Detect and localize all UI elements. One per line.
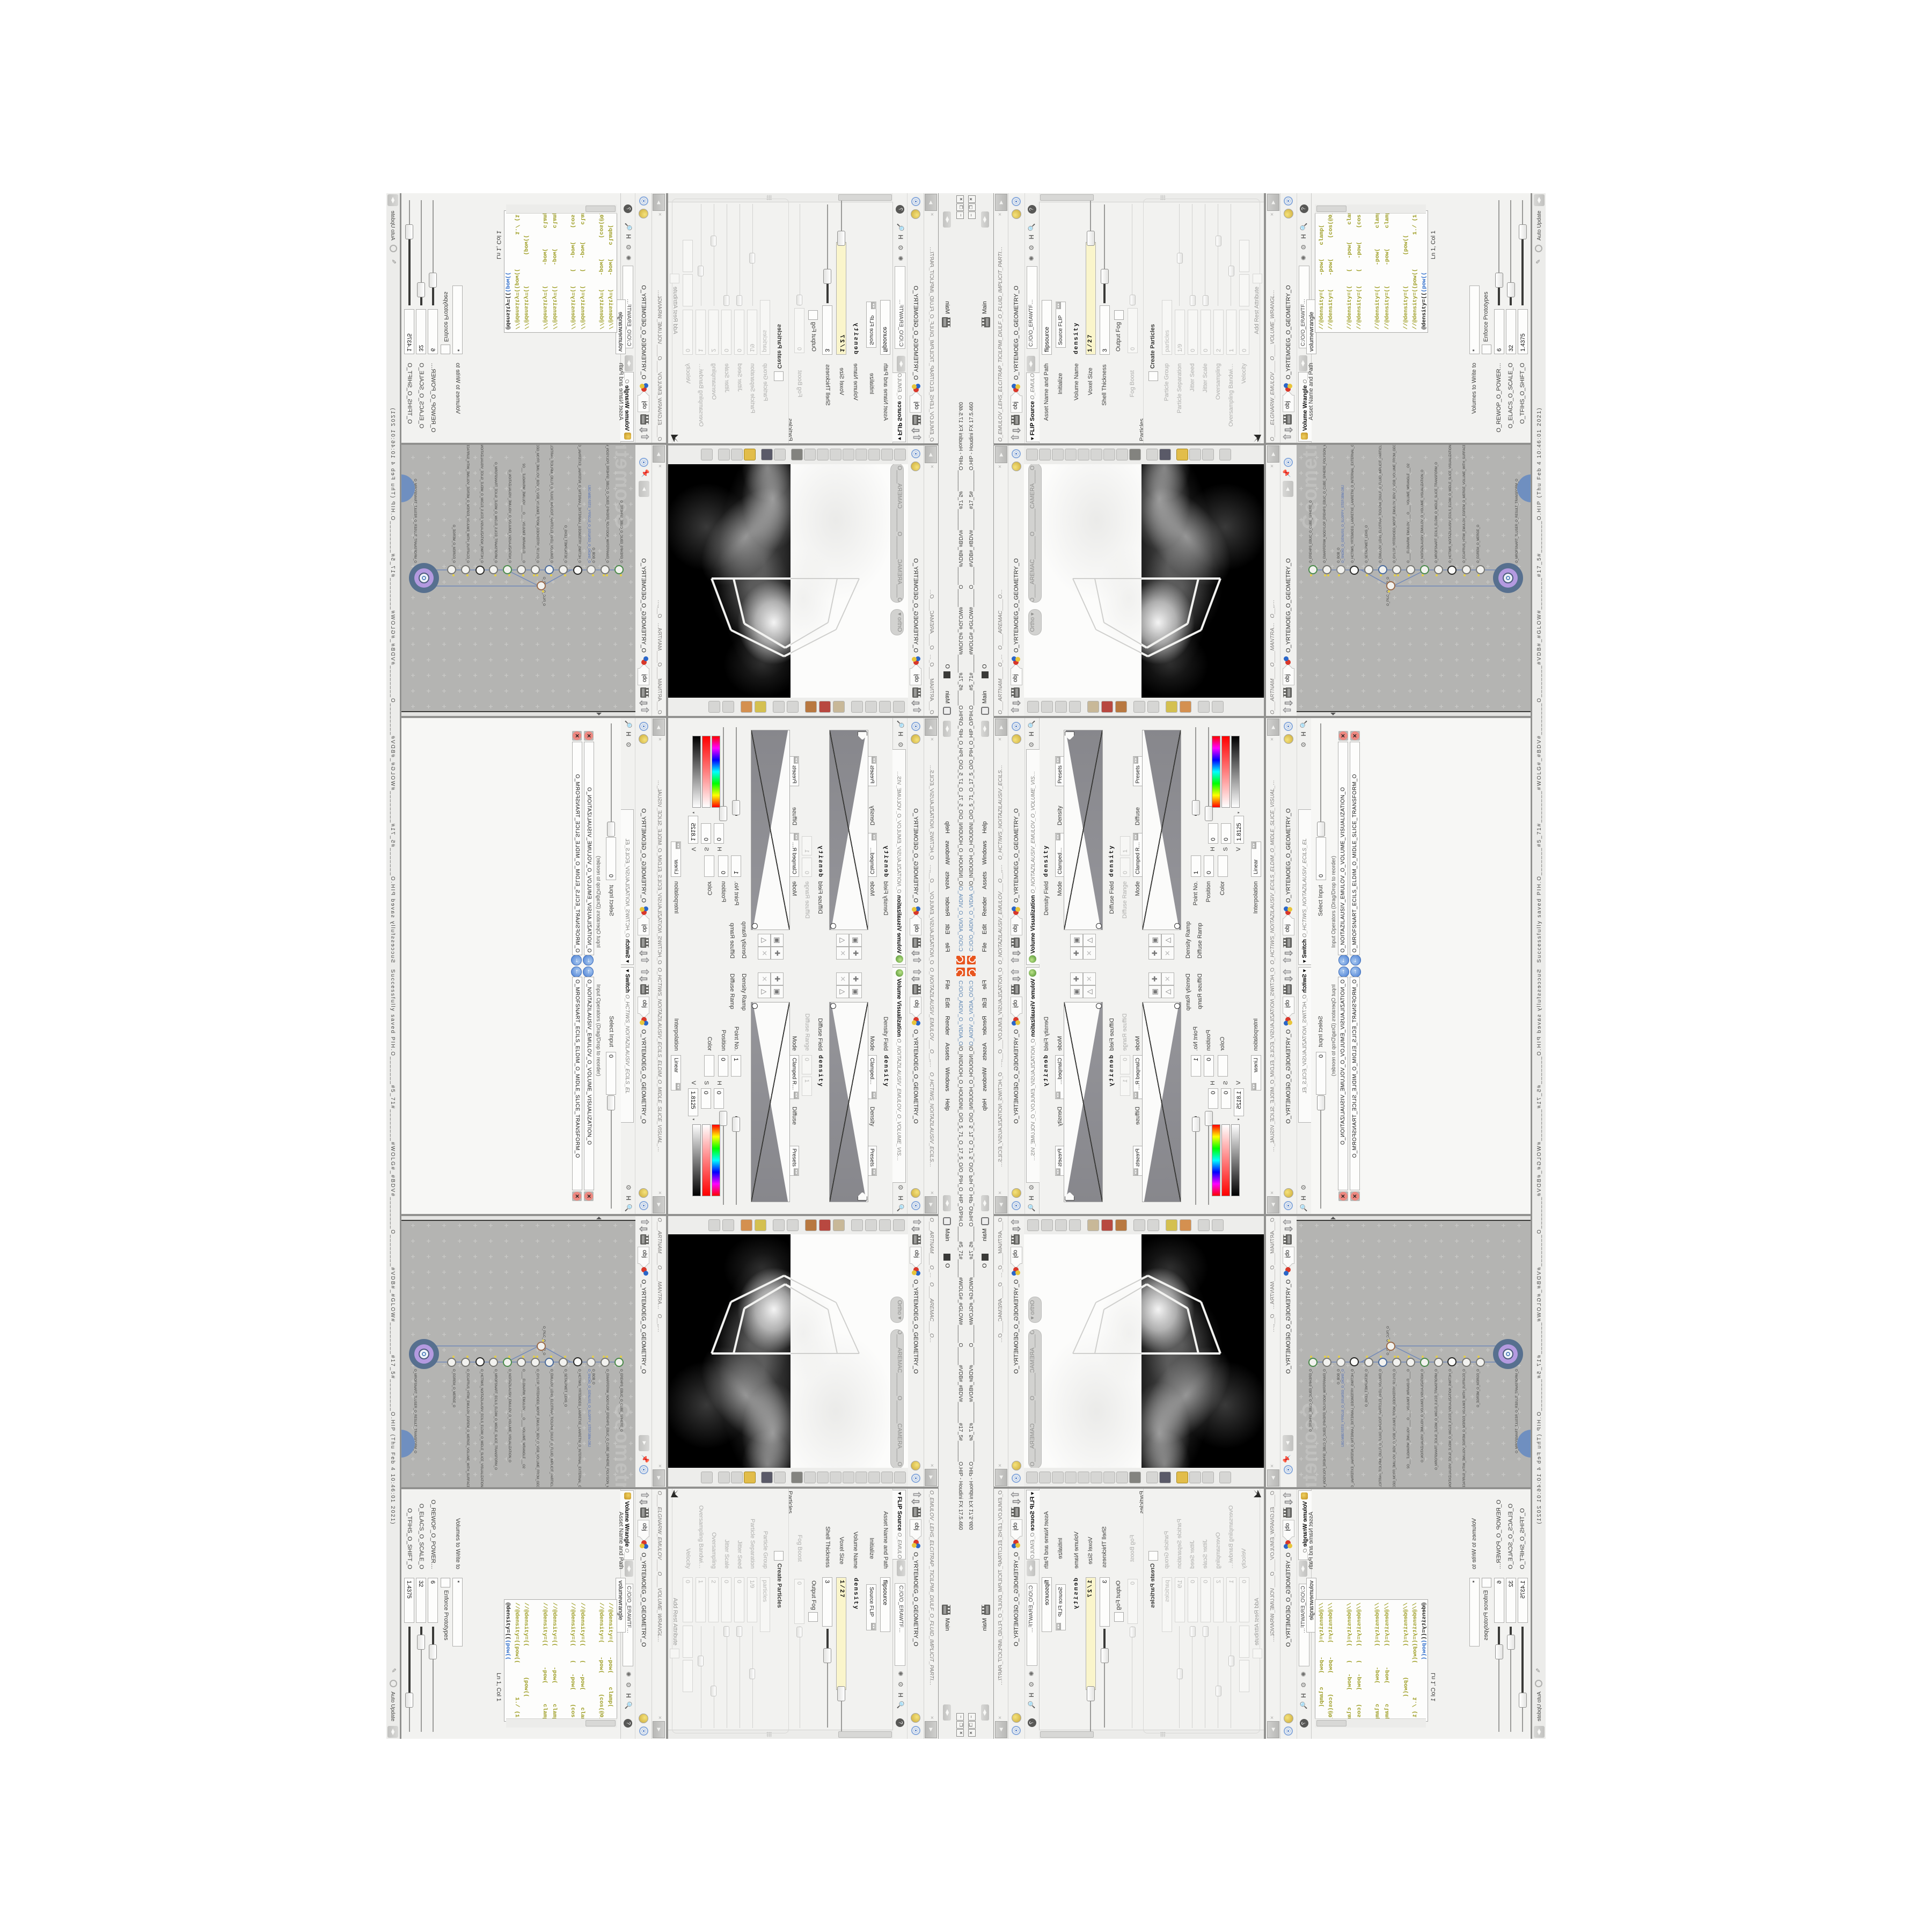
svg-text:O_GYLOP_YRTEMOEG_MORF_EMULOV_B: O_GYLOP_YRTEMOEG_MORF_EMULOV_BDV_O_VDB_V…: [536, 445, 539, 563]
svg-text:O_NOITAZILAUSIV_EMULOV_O_VOLUM: O_NOITAZILAUSIV_EMULOV_O_VOLUME_VISUALIZ…: [508, 470, 511, 563]
svg-text:O_EGREM_O_MERGE_O: O_EGREM_O_MERGE_O: [1477, 1369, 1480, 1408]
svg-text:O_SETALPMET_LEHS_O: O_SETALPMET_LEHS_O: [1365, 1369, 1368, 1407]
svg-text:O_EMARFERIW_NOGYLOP_EREHPS_EBU: O_EMARFERIW_NOGYLOP_EREHPS_EBUC_O_CUBE_S…: [605, 445, 609, 563]
svg-text:O_BOB_O: O_BOB_O: [1337, 547, 1341, 563]
svg-text:O_HCTIWS_YRTEMOEG_LANRETXE_LAN: O_HCTIWS_YRTEMOEG_LANRETXE_LANRETNI_O_IN…: [577, 445, 581, 563]
svg-text:O_SNOIG_O_GENUSS_O_SLOPPY_STEP: O_SNOIG_O_GENUSS_O_SLOPPY_STEP.3BM.OBJ: [1342, 485, 1345, 563]
svg-text:O_HCTIWS_NOITAZILAUSIV_ECILS_E: O_HCTIWS_NOITAZILAUSIV_ECILS_ELDIM_O_MID…: [1449, 445, 1452, 563]
svg-text:O_EREHPS_EBUC_O_CUBE_SPHERE_O: O_EREHPS_EBUC_O_CUBE_SPHERE_O: [619, 1369, 623, 1432]
svg-text:O_ECAFRUS_HTIW_EMULOV_EGREM_O_: O_ECAFRUS_HTIW_EMULOV_EGREM_O_MERGE_VOLU…: [1463, 1369, 1466, 1487]
svg-text:O_HCTIWS_YRTEMOEG_LANRETXE_LAN: O_HCTIWS_YRTEMOEG_LANRETXE_LANRETNI_O_IN…: [577, 1369, 581, 1487]
svg-text:O_HCTIWS_NOITAZILAUSIV_ECILS_E: O_HCTIWS_NOITAZILAUSIV_ECILS_ELDIM_O_MID…: [480, 1369, 483, 1487]
svg-text:O_SETALPMET_LEHS_O: O_SETALPMET_LEHS_O: [563, 525, 567, 563]
svg-text:O_NOITAZILAUSIV_EMULOV_O_VOLUM: O_NOITAZILAUSIV_EMULOV_O_VOLUME_VISUALIZ…: [508, 1369, 511, 1462]
svg-text:O____ELGNARW_EMULOV____O____VO: O____ELGNARW_EMULOV____O____VOLUME_WRANG…: [1407, 1369, 1410, 1469]
svg-text:O_SETALPMET_LEHS_O: O_SETALPMET_LEHS_O: [1365, 525, 1368, 563]
svg-text:O_ECAFRUS_HTIW_EMULOV_EGREM_O_: O_ECAFRUS_HTIW_EMULOV_EGREM_O_MERGE_VOLU…: [466, 445, 469, 563]
svg-text:O_EMARFERIW_NOGYLOP_EREHPS_EBU: O_EMARFERIW_NOGYLOP_EREHPS_EBUC_O_CUBE_S…: [1323, 1369, 1327, 1487]
svg-text:O_MROFSNART_ECILS_ELDIM_O_MIDL: O_MROFSNART_ECILS_ELDIM_O_MIDLE_SLICE_TR…: [1435, 1369, 1438, 1470]
svg-text:O_MROFSNART_ECILS_ELDIM_O_MIDL: O_MROFSNART_ECILS_ELDIM_O_MIDLE_SLICE_TR…: [1435, 462, 1438, 563]
svg-text:O_EMARFERIW_NOGYLOP_EREHPS_EBU: O_EMARFERIW_NOGYLOP_EREHPS_EBUC_O_CUBE_S…: [1323, 445, 1327, 563]
svg-text:O_BOB_O: O_BOB_O: [591, 547, 595, 563]
svg-text:O_GYLOP_YRTEMOEG_MORF_EMULOV_B: O_GYLOP_YRTEMOEG_MORF_EMULOV_BDV_O_VDB_V…: [1393, 445, 1396, 563]
svg-text:O_HCTIWS_YRTEMOEG_LANRETXE_LAN: O_HCTIWS_YRTEMOEG_LANRETXE_LANRETNI_O_IN…: [1351, 1369, 1355, 1487]
svg-text:O_HCTIWS_YRTEMOEG_LANRETXE_LAN: O_HCTIWS_YRTEMOEG_LANRETXE_LANRETNI_O_IN…: [1351, 445, 1355, 563]
svg-text:O_BOB_O: O_BOB_O: [591, 1369, 595, 1385]
svg-text:O_HCTIWS_NOITAZILAUSIV_ECILS_E: O_HCTIWS_NOITAZILAUSIV_ECILS_ELDIM_O_MID…: [1449, 1369, 1452, 1487]
svg-text:O_EREHPS_EBUC_O_CUBE_SPHERE_O: O_EREHPS_EBUC_O_CUBE_SPHERE_O: [1309, 500, 1313, 563]
svg-text:O_MROFSNART_ECILS_ELDIM_O_MIDL: O_MROFSNART_ECILS_ELDIM_O_MIDLE_SLICE_TR…: [494, 462, 497, 563]
svg-text:O_EMULOV_LEHS_ELCITRAP_TICILPM: O_EMULOV_LEHS_ELCITRAP_TICILPMI_DIULF_O_…: [550, 445, 553, 563]
svg-text:O_EREHPS_EBUC_O_CUBE_SPHERE_O: O_EREHPS_EBUC_O_CUBE_SPHERE_O: [619, 500, 623, 563]
svg-text:O_SNOIG_O_GENUSS_O_SLOPPY_STEP: O_SNOIG_O_GENUSS_O_SLOPPY_STEP.3BM.OBJ: [1342, 1369, 1345, 1447]
svg-text:O_EGREM_O_MERGE_O: O_EGREM_O_MERGE_O: [452, 1369, 455, 1408]
svg-text:O_GYLOP_YRTEMOEG_MORF_EMULOV_B: O_GYLOP_YRTEMOEG_MORF_EMULOV_BDV_O_VDB_V…: [1393, 1369, 1396, 1487]
svg-text:O_SETALPMET_LEHS_O: O_SETALPMET_LEHS_O: [563, 1369, 567, 1407]
svg-text:O_NOITAZILAUSIV_EMULOV_O_VOLUM: O_NOITAZILAUSIV_EMULOV_O_VOLUME_VISUALIZ…: [1421, 1369, 1424, 1462]
svg-text:O____ELGNARW_EMULOV____O____VO: O____ELGNARW_EMULOV____O____VOLUME_WRANG…: [1407, 463, 1410, 563]
svg-text:O_EREHPS_EBUC_O_CUBE_SPHERE_O: O_EREHPS_EBUC_O_CUBE_SPHERE_O: [1309, 1369, 1313, 1432]
svg-text:O_EMULOV_LEHS_ELCITRAP_TICILPM: O_EMULOV_LEHS_ELCITRAP_TICILPMI_DIULF_O_…: [1379, 1369, 1382, 1487]
svg-text:O_HCTIWS_NOITAZILAUSIV_ECILS_E: O_HCTIWS_NOITAZILAUSIV_ECILS_ELDIM_O_MID…: [480, 445, 483, 563]
svg-text:O_ECAFRUS_HTIW_EMULOV_EGREM_O_: O_ECAFRUS_HTIW_EMULOV_EGREM_O_MERGE_VOLU…: [1463, 445, 1466, 563]
svg-text:O_EMULOV_LEHS_ELCITRAP_TICILPM: O_EMULOV_LEHS_ELCITRAP_TICILPMI_DIULF_O_…: [1379, 445, 1382, 563]
svg-text:O_EGREM_O_MERGE_O: O_EGREM_O_MERGE_O: [452, 524, 455, 563]
svg-text:O____ELGNARW_EMULOV____O____VO: O____ELGNARW_EMULOV____O____VOLUME_WRANG…: [522, 1369, 525, 1469]
svg-text:O_BOB_O: O_BOB_O: [1337, 1369, 1341, 1385]
svg-text:O_EMULOV_LEHS_ELCITRAP_TICILPM: O_EMULOV_LEHS_ELCITRAP_TICILPMI_DIULF_O_…: [550, 1369, 553, 1487]
svg-text:O_GYLOP_YRTEMOEG_MORF_EMULOV_B: O_GYLOP_YRTEMOEG_MORF_EMULOV_BDV_O_VDB_V…: [536, 1369, 539, 1487]
svg-text:O_SNOIG_O_GENUSS_O_SLOPPY_STEP: O_SNOIG_O_GENUSS_O_SLOPPY_STEP.3BM.OBJ: [587, 1369, 590, 1447]
svg-text:O_NOITAZILAUSIV_EMULOV_O_VOLUM: O_NOITAZILAUSIV_EMULOV_O_VOLUME_VISUALIZ…: [1421, 470, 1424, 563]
svg-text:O_SNOIG_O_GENUSS_O_SLOPPY_STEP: O_SNOIG_O_GENUSS_O_SLOPPY_STEP.3BM.OBJ: [587, 485, 590, 563]
svg-text:O____ELGNARW_EMULOV____O____VO: O____ELGNARW_EMULOV____O____VOLUME_WRANG…: [522, 463, 525, 563]
svg-text:O_EGREM_O_MERGE_O: O_EGREM_O_MERGE_O: [1477, 524, 1480, 563]
svg-text:O_ECAFRUS_HTIW_EMULOV_EGREM_O_: O_ECAFRUS_HTIW_EMULOV_EGREM_O_MERGE_VOLU…: [466, 1369, 469, 1487]
svg-text:O_EMARFERIW_NOGYLOP_EREHPS_EBU: O_EMARFERIW_NOGYLOP_EREHPS_EBUC_O_CUBE_S…: [605, 1369, 609, 1487]
svg-text:O_MROFSNART_ECILS_ELDIM_O_MIDL: O_MROFSNART_ECILS_ELDIM_O_MIDLE_SLICE_TR…: [494, 1369, 497, 1470]
